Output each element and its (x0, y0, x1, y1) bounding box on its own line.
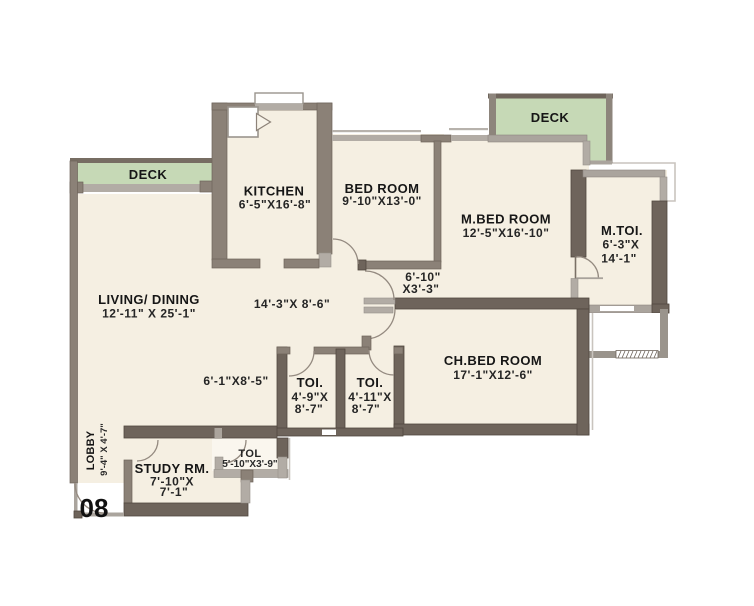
svg-text:LOBBY: LOBBY (85, 430, 97, 470)
svg-text:M.TOI.: M.TOI. (601, 223, 643, 238)
svg-text:08: 08 (80, 493, 109, 523)
svg-text:TOI.: TOI. (357, 375, 384, 390)
svg-text:8'-7": 8'-7" (295, 402, 323, 416)
svg-text:DECK: DECK (531, 110, 570, 125)
svg-text:17'-1"X12'-6": 17'-1"X12'-6" (453, 368, 533, 382)
svg-text:12'-11" X 25'-1": 12'-11" X 25'-1" (102, 307, 196, 321)
svg-text:6'-5"X16'-8": 6'-5"X16'-8" (239, 198, 311, 212)
svg-text:5'-10"X3'-9": 5'-10"X3'-9" (222, 459, 278, 470)
svg-text:6'-3"X: 6'-3"X (603, 238, 640, 252)
svg-text:LIVING/ DINING: LIVING/ DINING (98, 292, 200, 307)
svg-text:TOI.: TOI. (297, 375, 324, 390)
svg-text:KITCHEN: KITCHEN (244, 184, 305, 199)
svg-text:DECK: DECK (129, 167, 168, 182)
svg-text:6'-1"X8'-5": 6'-1"X8'-5" (203, 374, 268, 388)
svg-text:14'-1": 14'-1" (601, 252, 637, 266)
svg-text:X3'-3": X3'-3" (403, 282, 440, 296)
svg-text:9'-10"X13'-0": 9'-10"X13'-0" (342, 194, 422, 208)
svg-text:8'-7": 8'-7" (352, 402, 380, 416)
svg-text:12'-5"X16'-10": 12'-5"X16'-10" (463, 226, 550, 240)
svg-text:9'-4" X 4'-7": 9'-4" X 4'-7" (99, 423, 110, 476)
svg-text:M.BED ROOM: M.BED ROOM (461, 212, 551, 227)
svg-text:14'-3"X 8'-6": 14'-3"X 8'-6" (254, 297, 330, 311)
svg-text:7'-1": 7'-1" (160, 485, 188, 499)
svg-text:CH.BED ROOM: CH.BED ROOM (444, 353, 542, 368)
